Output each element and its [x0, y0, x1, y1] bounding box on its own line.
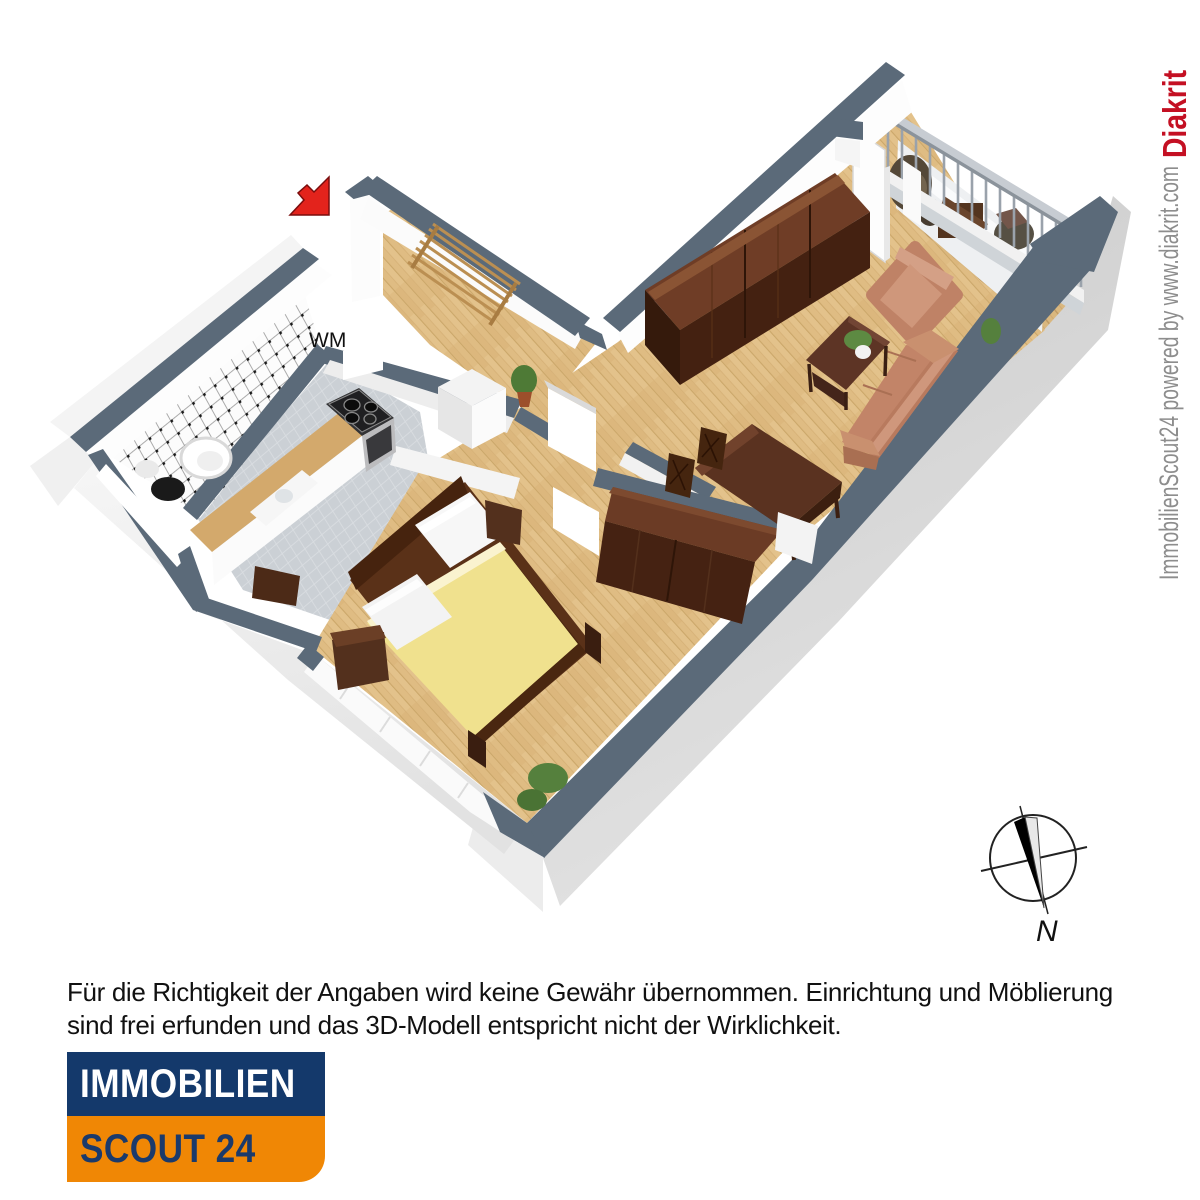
svg-text:N: N — [1036, 915, 1058, 948]
svg-text:WM: WM — [309, 329, 346, 352]
svg-text:Diakrit: Diakrit — [1156, 70, 1193, 158]
svg-text:ImmobilienScout24 powered by w: ImmobilienScout24 powered by www.diakrit… — [1154, 166, 1184, 580]
